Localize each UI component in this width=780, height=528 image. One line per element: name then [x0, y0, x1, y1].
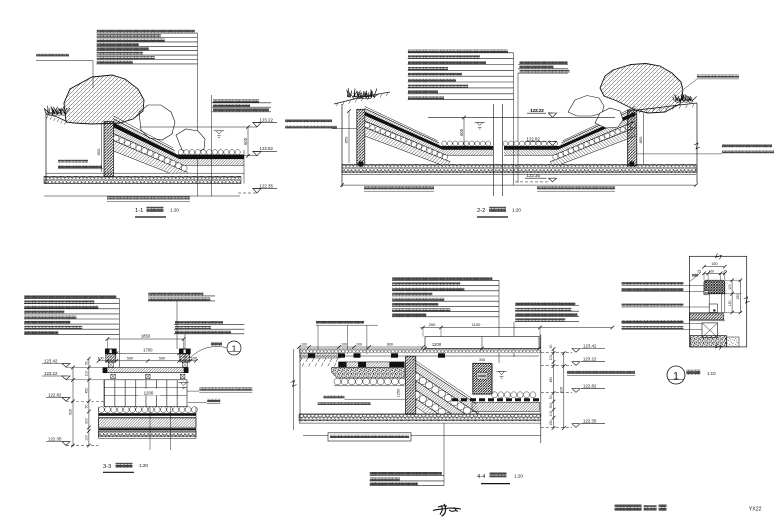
svg-text:1-1: 1-1 — [135, 208, 143, 214]
svg-text:200: 200 — [429, 322, 436, 327]
svg-text:25: 25 — [723, 269, 727, 273]
svg-text:50: 50 — [549, 395, 553, 399]
svg-text:123.22: 123.22 — [260, 117, 274, 122]
svg-text:100: 100 — [84, 435, 88, 441]
svg-text:850: 850 — [638, 136, 643, 143]
svg-text:50: 50 — [84, 405, 88, 409]
svg-text:600: 600 — [387, 343, 393, 347]
svg-text:500: 500 — [127, 356, 133, 360]
svg-text:123.42: 123.42 — [44, 358, 58, 363]
svg-text:123.22: 123.22 — [530, 108, 544, 113]
svg-text:1200: 1200 — [432, 342, 442, 347]
svg-text:122.35: 122.35 — [583, 419, 597, 424]
svg-text:50: 50 — [84, 361, 88, 365]
svg-text:122.35: 122.35 — [527, 173, 541, 178]
svg-text:100: 100 — [97, 356, 103, 360]
svg-text:4-4: 4-4 — [477, 474, 486, 480]
svg-text:1: 1 — [232, 344, 237, 354]
svg-text:600: 600 — [243, 137, 248, 145]
svg-text:100: 100 — [301, 343, 307, 347]
svg-text:1:20: 1:20 — [514, 474, 523, 479]
svg-text:100: 100 — [191, 356, 197, 360]
svg-text:122.82: 122.82 — [527, 137, 541, 142]
svg-text:850: 850 — [344, 136, 349, 143]
svg-text:1: 1 — [673, 371, 679, 383]
svg-text:2-2: 2-2 — [477, 208, 485, 214]
svg-text:1:10: 1:10 — [707, 371, 716, 376]
svg-text:600: 600 — [459, 128, 464, 136]
svg-text:300: 300 — [84, 418, 88, 424]
svg-text:50: 50 — [549, 345, 553, 349]
svg-text:100: 100 — [341, 343, 347, 347]
svg-text:1700: 1700 — [143, 348, 153, 353]
svg-text:123.22: 123.22 — [583, 357, 597, 362]
svg-text:122.35: 122.35 — [260, 183, 274, 188]
svg-text:1:20: 1:20 — [139, 463, 148, 468]
svg-text:250: 250 — [736, 294, 740, 300]
svg-text:123.42: 123.42 — [583, 344, 597, 349]
svg-text:150: 150 — [728, 300, 732, 306]
svg-text:100: 100 — [728, 284, 732, 290]
svg-text:100: 100 — [549, 411, 553, 417]
svg-text:100: 100 — [84, 371, 88, 377]
svg-text:450: 450 — [549, 377, 553, 383]
svg-text:122.35: 122.35 — [48, 437, 62, 442]
svg-text:450: 450 — [84, 388, 88, 394]
svg-text:1100: 1100 — [472, 322, 481, 327]
svg-text:500: 500 — [159, 356, 165, 360]
svg-text:1250: 1250 — [397, 389, 401, 397]
svg-text:YX22: YX22 — [749, 506, 762, 512]
svg-text:3-3: 3-3 — [103, 464, 111, 470]
svg-text:1200: 1200 — [144, 390, 154, 395]
svg-text:122.82: 122.82 — [260, 146, 274, 151]
svg-text:100: 100 — [549, 355, 553, 361]
svg-text:100: 100 — [708, 269, 714, 273]
svg-text:300: 300 — [549, 403, 553, 409]
svg-text:1850: 1850 — [141, 334, 151, 339]
svg-text:100: 100 — [356, 343, 362, 347]
svg-text:850: 850 — [96, 148, 101, 155]
svg-text:122.82: 122.82 — [48, 392, 62, 397]
svg-text:1:20: 1:20 — [512, 208, 521, 213]
svg-text:150: 150 — [549, 420, 553, 426]
svg-text:1:20: 1:20 — [170, 208, 179, 213]
svg-text:122.82: 122.82 — [583, 384, 597, 389]
svg-text:150: 150 — [711, 262, 717, 266]
svg-text:915: 915 — [69, 409, 73, 415]
svg-text:123.22: 123.22 — [44, 371, 58, 376]
svg-text:915: 915 — [559, 387, 563, 393]
svg-text:300: 300 — [479, 358, 485, 362]
